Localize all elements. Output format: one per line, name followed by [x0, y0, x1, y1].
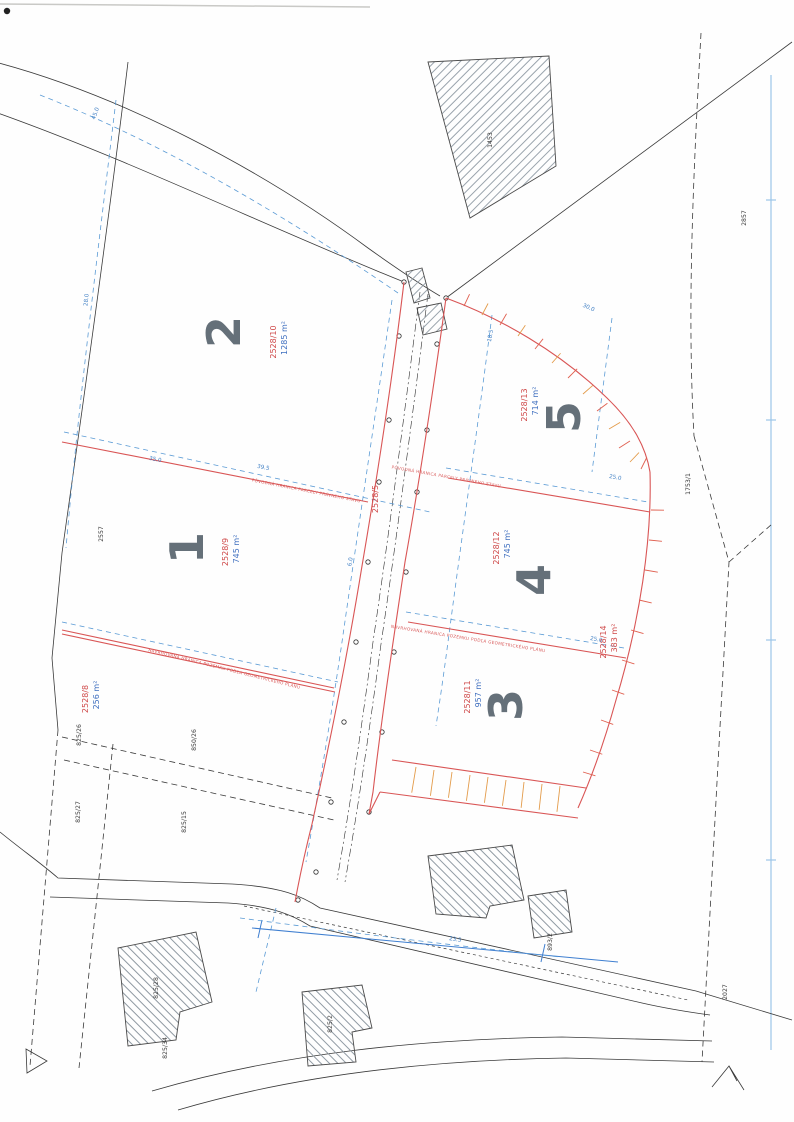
fence-line: [345, 294, 428, 882]
survey-point: [354, 640, 358, 644]
map-label-anno: PÔVODNÁ HRANICA PARCELY PRÁVNEHO STAVU: [251, 478, 361, 504]
labels-layer: 123452528/9745 m²2528/101285 m²2528/1195…: [75, 106, 748, 1059]
map-label-black: 893/2: [547, 933, 554, 951]
slope-hatch-tick: [641, 457, 647, 469]
map-label-dim: 25.0: [609, 474, 623, 482]
map-label-area: 714 m²: [531, 387, 540, 416]
scan-artifacts: [0, 4, 776, 1090]
map-label-black: 1453: [487, 132, 494, 148]
survey-point: [296, 898, 300, 902]
slope-hatch-tick: [639, 600, 652, 603]
slope-hatch-tick: [466, 775, 470, 801]
map-label-black: 1753/1: [685, 473, 692, 495]
map-label-area: 957 m²: [474, 679, 483, 708]
road-edge: [0, 62, 440, 296]
map-label-pid: 2528/11: [463, 680, 472, 713]
parcel-boundary: [30, 730, 58, 1066]
map-label-pid: 2528/8: [81, 685, 90, 713]
building: [528, 890, 572, 938]
slope-hatch-tick: [601, 720, 613, 724]
slope-hatch-tick: [630, 453, 639, 462]
map-label-pid: 2528/13: [520, 388, 529, 421]
slope-hatch-tick: [609, 422, 620, 429]
dimension-line: [240, 918, 560, 957]
lane-strip-edge: [64, 760, 334, 820]
map-label-black: 825/26: [76, 724, 83, 746]
slope-hatch-tick: [568, 369, 577, 378]
corner-registration-mark: [26, 1049, 47, 1073]
slope-hatch-tick: [649, 540, 662, 541]
slope-hatch-tick: [412, 767, 416, 793]
survey-point: [329, 800, 333, 804]
map-label-dim: 39.5: [256, 464, 270, 472]
survey-point: [387, 418, 391, 422]
map-label-digit: 2: [197, 316, 251, 348]
map-label-area: 745 m²: [503, 530, 512, 559]
survey-point: [314, 870, 318, 874]
new-boundaries-layer: [62, 282, 664, 902]
map-label-black: 2557: [98, 526, 105, 542]
slope-hatch-tick: [521, 782, 524, 808]
map-label-digit: 3: [479, 689, 533, 721]
survey-point: [404, 570, 408, 574]
slope-hatch-tick: [482, 304, 488, 315]
new-boundary: [446, 298, 650, 472]
slope-hatch-tick: [484, 777, 488, 803]
map-label-digit: 1: [160, 532, 214, 564]
small-structure: [417, 303, 447, 335]
slope-hatch-tick: [622, 660, 634, 664]
survey-point: [435, 342, 439, 346]
map-label-black: 825/34: [162, 1037, 169, 1059]
scanned-plan-page: 123452528/9745 m²2528/101285 m²2528/1195…: [0, 0, 794, 1122]
map-label-area: 256 m²: [92, 681, 101, 710]
building: [118, 932, 212, 1046]
dimension-line: [40, 95, 398, 293]
building: [428, 845, 524, 918]
map-label-dim: 35.0: [148, 456, 162, 464]
map-label-anno: NAVRHOVANÁ HRANICA POZEMKU PODĽA GEOMETR…: [391, 624, 546, 653]
cadastral-plan-drawing: 123452528/9745 m²2528/101285 m²2528/1195…: [0, 0, 794, 1122]
corner-ink-blob: [4, 8, 10, 14]
map-label-dim: 45.0: [91, 106, 101, 120]
slope-hatch-tick: [535, 339, 543, 349]
slope-hatch-tick: [583, 385, 593, 394]
dimension-line: [436, 315, 492, 726]
street-edge: [696, 991, 792, 1020]
slope-hatch-tick: [583, 772, 595, 776]
map-label-pid: 2528/5: [371, 485, 380, 513]
slope-hatch-tick: [502, 780, 506, 806]
map-label-dim: 28.0: [83, 293, 90, 306]
map-label-black: 825/15: [181, 811, 188, 833]
slope-hatch-tick: [597, 403, 607, 411]
building: [302, 985, 372, 1066]
parcel-boundary: [79, 744, 113, 1068]
dimension-line: [66, 100, 116, 548]
map-label-pid: 2528/10: [269, 325, 278, 358]
map-label-digit: 4: [507, 564, 561, 596]
map-label-area: 745 m²: [232, 535, 241, 564]
parcel-boundary: [729, 524, 772, 562]
survey-point: [342, 720, 346, 724]
parcel-boundary: [694, 436, 729, 1062]
map-label-pid: 2528/9: [221, 538, 230, 566]
map-label-dim: 18.5: [487, 329, 495, 343]
slope-hatch-tick: [557, 786, 560, 812]
map-label-black: 825/2: [327, 1015, 334, 1033]
map-label-dim: 25.0: [590, 636, 604, 644]
parcel-boundary: [691, 33, 701, 436]
dimension-line: [592, 318, 612, 472]
slope-hatch-tick: [464, 294, 470, 306]
survey-point: [366, 560, 370, 564]
map-label-black: 825/28: [153, 977, 160, 999]
map-label-area: 1285 m²: [280, 321, 289, 355]
dimension-line: [446, 468, 648, 502]
slope-hatch-tick: [539, 784, 542, 810]
small-structure: [406, 268, 430, 303]
slope-hatch-tick: [430, 770, 434, 796]
slope-hatch-marks: [412, 294, 664, 812]
slope-hatch-tick: [645, 570, 658, 572]
map-label-pid: 2528/12: [492, 531, 501, 564]
slope-hatch-tick: [448, 772, 452, 798]
map-label-black: 2857: [741, 210, 748, 226]
dimension-lines-layer: [40, 95, 648, 992]
street-centerline: [244, 906, 688, 1000]
street-edge: [0, 832, 696, 991]
new-boundary: [369, 298, 446, 814]
map-label-black: 850/26: [191, 729, 198, 751]
fence-line: [337, 292, 420, 880]
map-label-dim: 23.5: [449, 936, 463, 944]
page-edge-shadow: [0, 4, 370, 7]
map-label-black: 825/27: [75, 801, 82, 823]
survey-point: [377, 480, 381, 484]
slope-hatch-tick: [631, 630, 644, 634]
corner-registration-mark: [712, 1066, 744, 1090]
map-label-pid: 383 m²: [610, 624, 619, 653]
slope-hatch-tick: [619, 441, 630, 448]
new-boundary: [295, 282, 404, 902]
map-label-dim: 30.0: [581, 303, 595, 314]
map-label-dim: 6.0: [347, 557, 354, 567]
map-label-digit: 5: [537, 401, 591, 433]
dimension-line: [62, 622, 338, 682]
new-boundary: [369, 760, 586, 818]
street-edge: [152, 1037, 712, 1091]
dimension-line: [306, 300, 392, 862]
map-label-black: 2027: [722, 984, 729, 1000]
